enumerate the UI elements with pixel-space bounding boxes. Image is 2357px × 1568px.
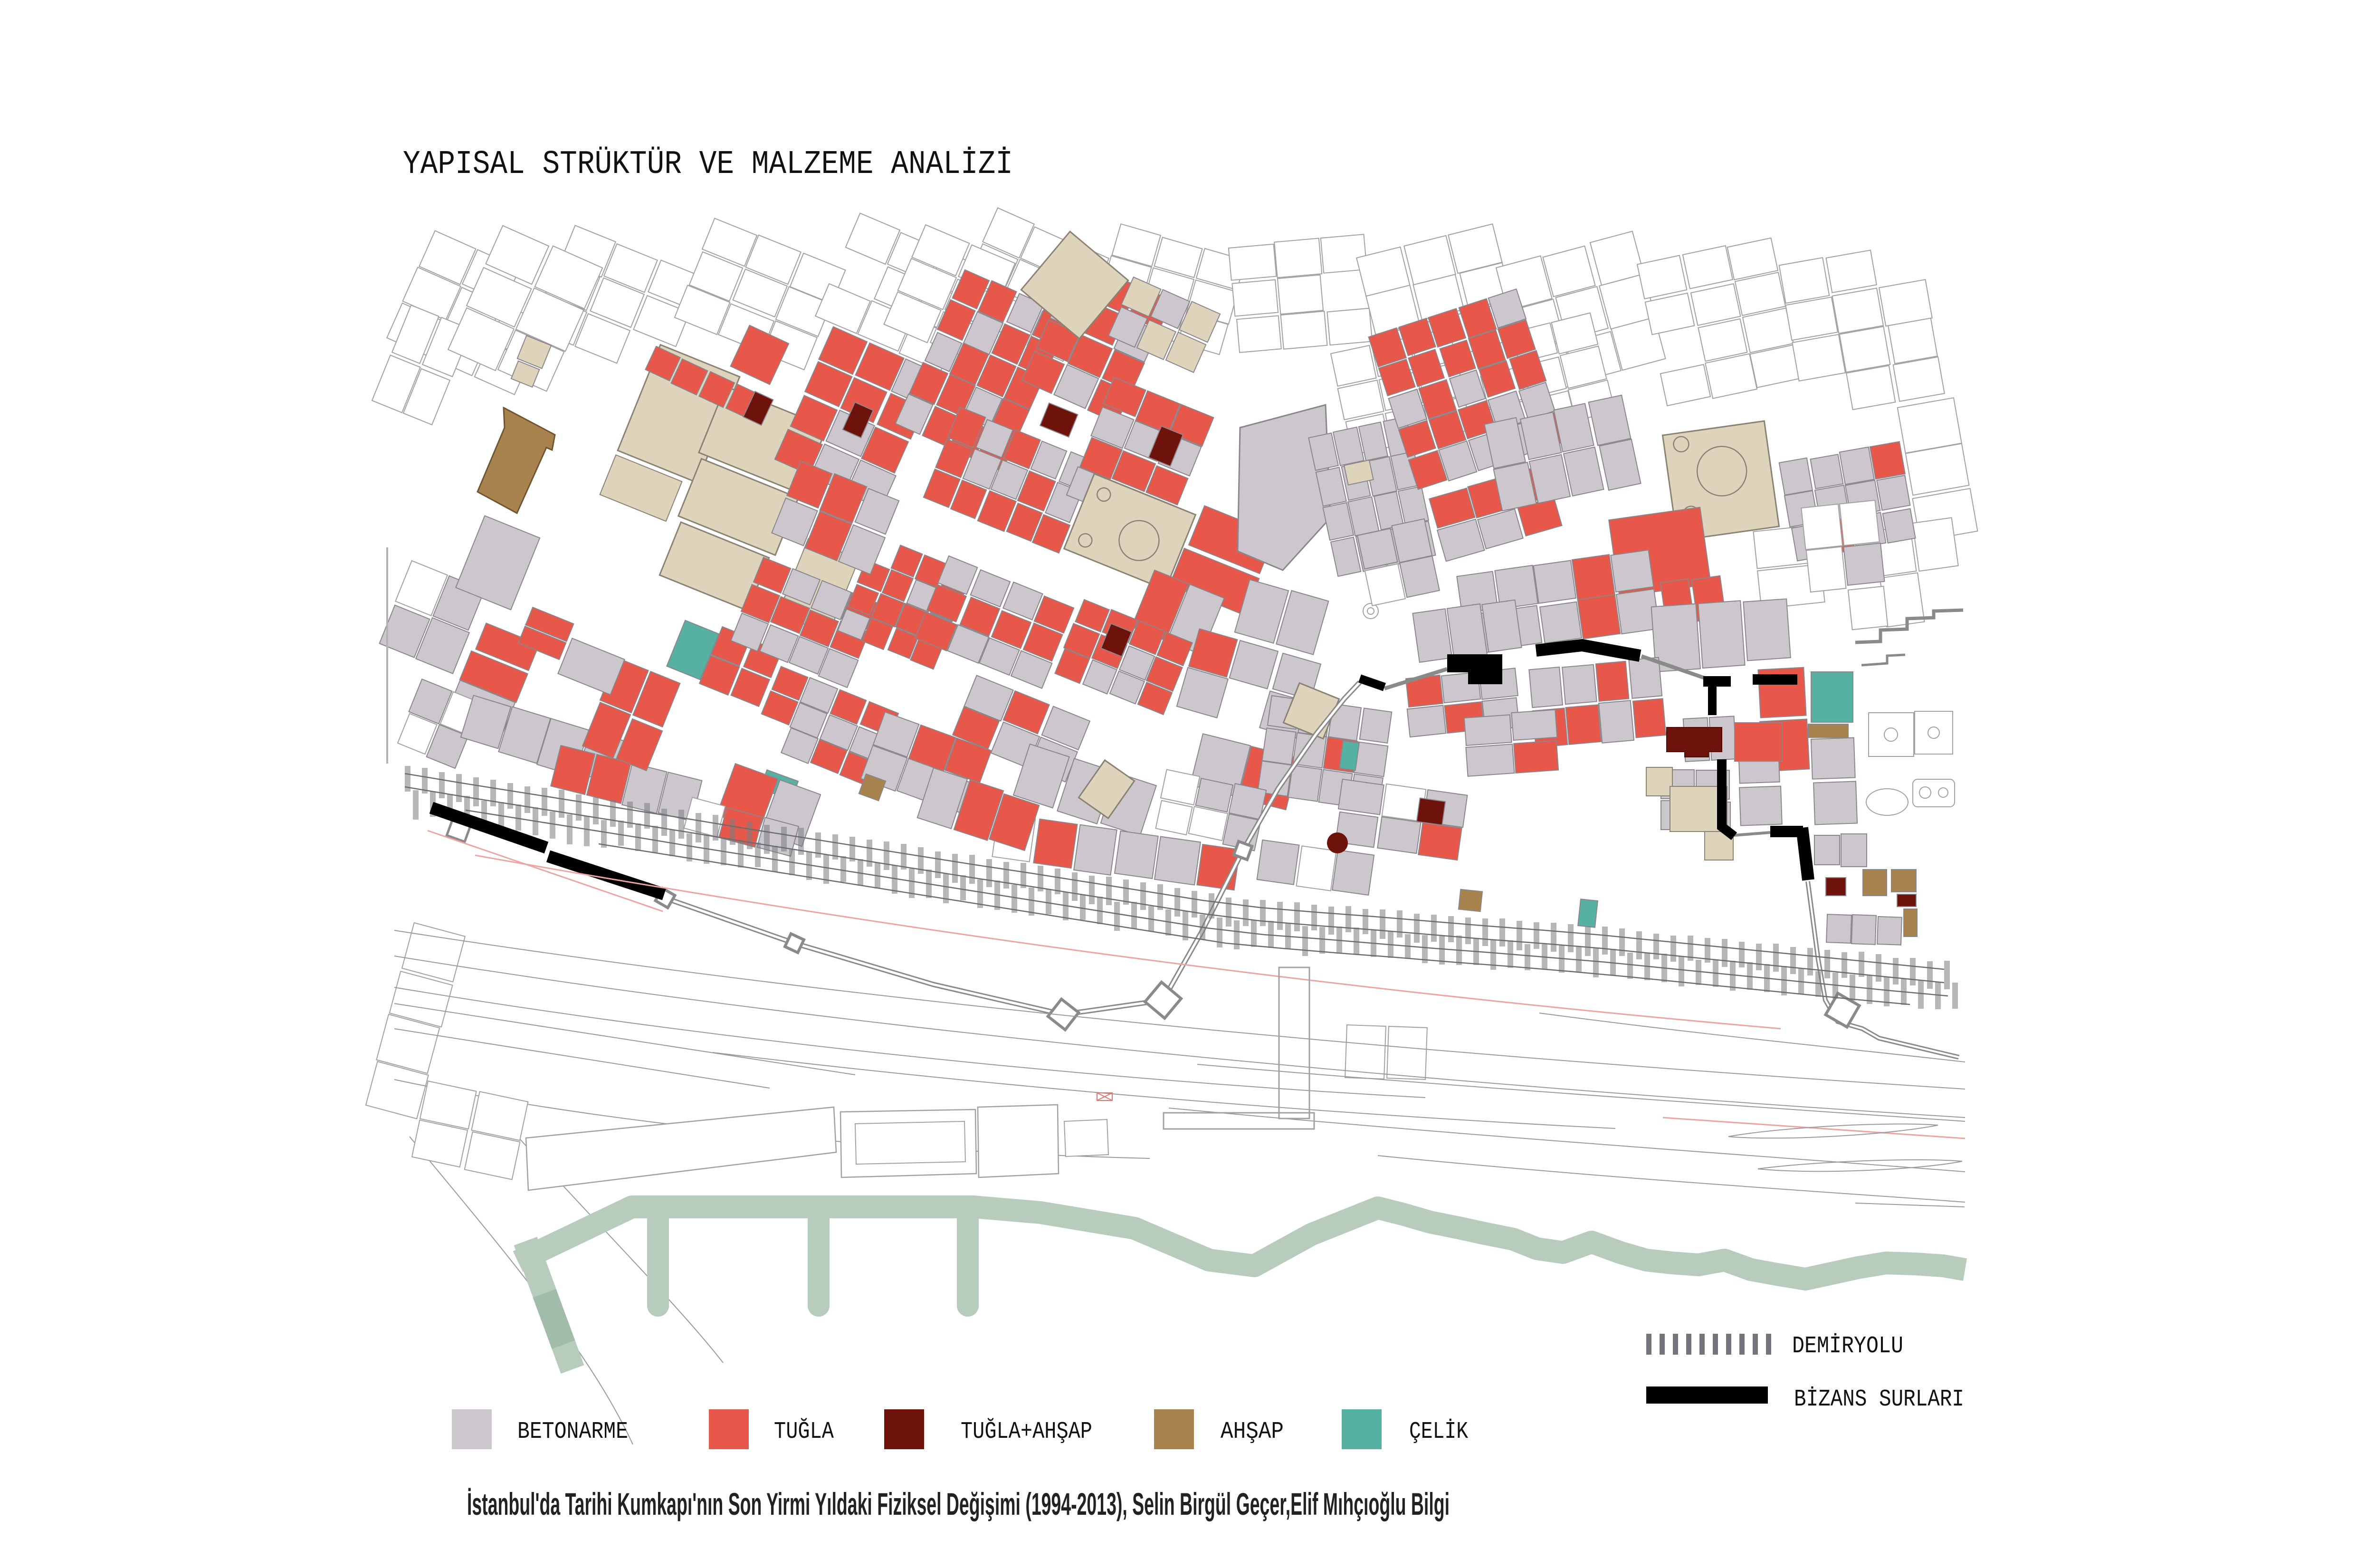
svg-text:BETONARME: BETONARME (517, 1418, 628, 1445)
svg-text:İstanbul'da Tarihi Kumkapı'nın: İstanbul'da Tarihi Kumkapı'nın Son Yirmi… (467, 1486, 1450, 1521)
svg-text:YAPISAL STRÜKTÜR VE MALZEME AN: YAPISAL STRÜKTÜR VE MALZEME ANALİZİ (403, 146, 1013, 183)
svg-text:TUĞLA: TUĞLA (774, 1417, 834, 1445)
svg-text:AHŞAP: AHŞAP (1221, 1418, 1284, 1445)
svg-text:DEMİRYOLU: DEMİRYOLU (1792, 1333, 1903, 1360)
svg-text:ÇELİK: ÇELİK (1409, 1418, 1468, 1445)
svg-text:TUĞLA+AHŞAP: TUĞLA+AHŞAP (961, 1417, 1092, 1445)
svg-text:BİZANS SURLARI: BİZANS SURLARI (1794, 1386, 1964, 1413)
